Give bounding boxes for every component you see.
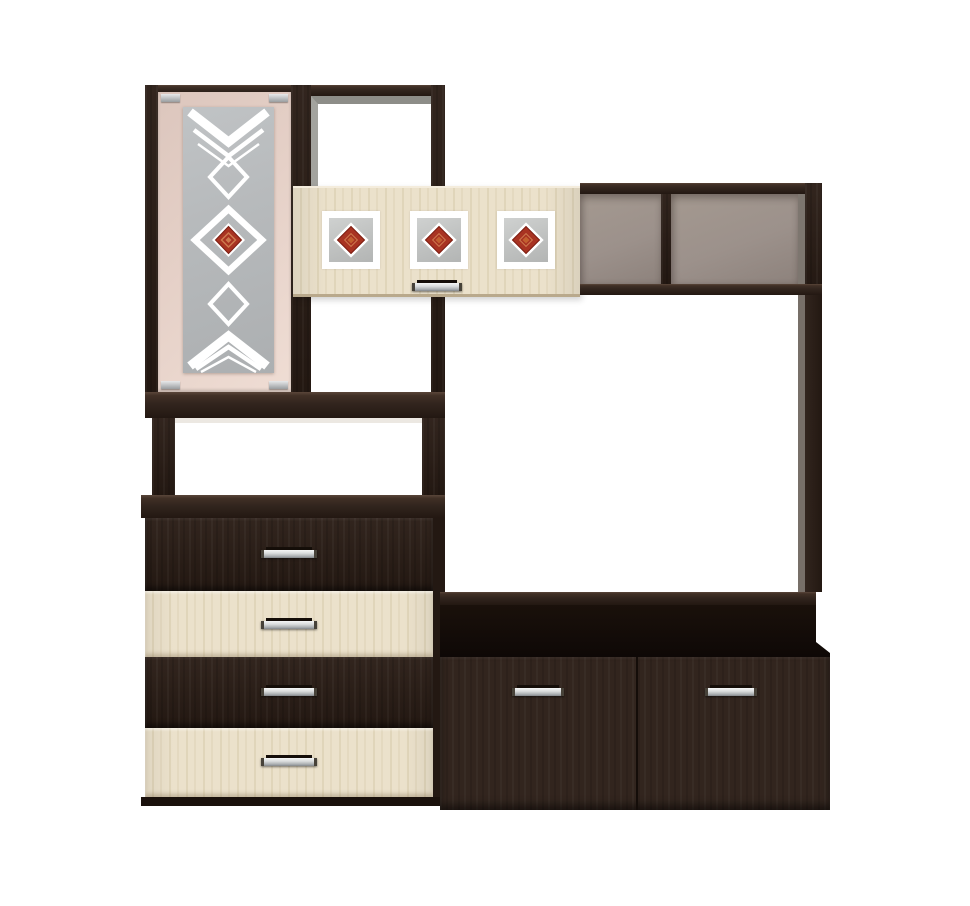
shelf-top-rail [580, 183, 822, 194]
tv-drawer-seam [636, 657, 638, 810]
drawer-handle [261, 685, 317, 696]
drawer-handle [261, 755, 317, 766]
tv-stand [440, 592, 830, 810]
shelf-divider [661, 194, 671, 284]
shelf-compartment [671, 194, 798, 284]
tv-stand-recess [440, 605, 830, 657]
door-hinge-icon [161, 381, 180, 389]
panel-glass [329, 218, 373, 262]
wall-cabinet-handle [412, 280, 462, 291]
right-lower-post [422, 418, 445, 496]
decor-panel [410, 211, 468, 269]
furniture-photo [0, 0, 970, 906]
open-shelf-unit [580, 183, 822, 295]
shelf-compartment [580, 194, 661, 284]
glass-door [158, 92, 291, 392]
door-hinge-icon [269, 94, 288, 102]
left-lower-post [152, 418, 175, 496]
door-hinge-icon [269, 381, 288, 389]
drawer-handle [261, 618, 317, 629]
door-glass-panel [183, 107, 274, 373]
tv-stand-top [440, 592, 830, 605]
right-upright-post [805, 183, 822, 295]
door-hinge-icon [161, 94, 180, 102]
panel-glass [417, 218, 461, 262]
tv-drawer-handle [705, 685, 757, 696]
shelf-bottom-rail [580, 284, 822, 295]
dresser-plinth [141, 797, 445, 806]
open-niche-top [311, 96, 445, 194]
right-upright-post-lower [798, 295, 822, 592]
dresser-top [141, 495, 445, 518]
open-niche-middle [311, 292, 431, 396]
decor-panel [497, 211, 555, 269]
tv-drawer-handle [512, 685, 564, 696]
tv-stand-drawers [440, 657, 830, 810]
left-upright-post [145, 85, 158, 392]
glass-ornament [183, 107, 274, 373]
mid-shelf [145, 392, 445, 418]
open-niche-lower [175, 418, 422, 501]
drawer-handle [261, 547, 317, 558]
decor-panel [322, 211, 380, 269]
panel-glass [504, 218, 548, 262]
